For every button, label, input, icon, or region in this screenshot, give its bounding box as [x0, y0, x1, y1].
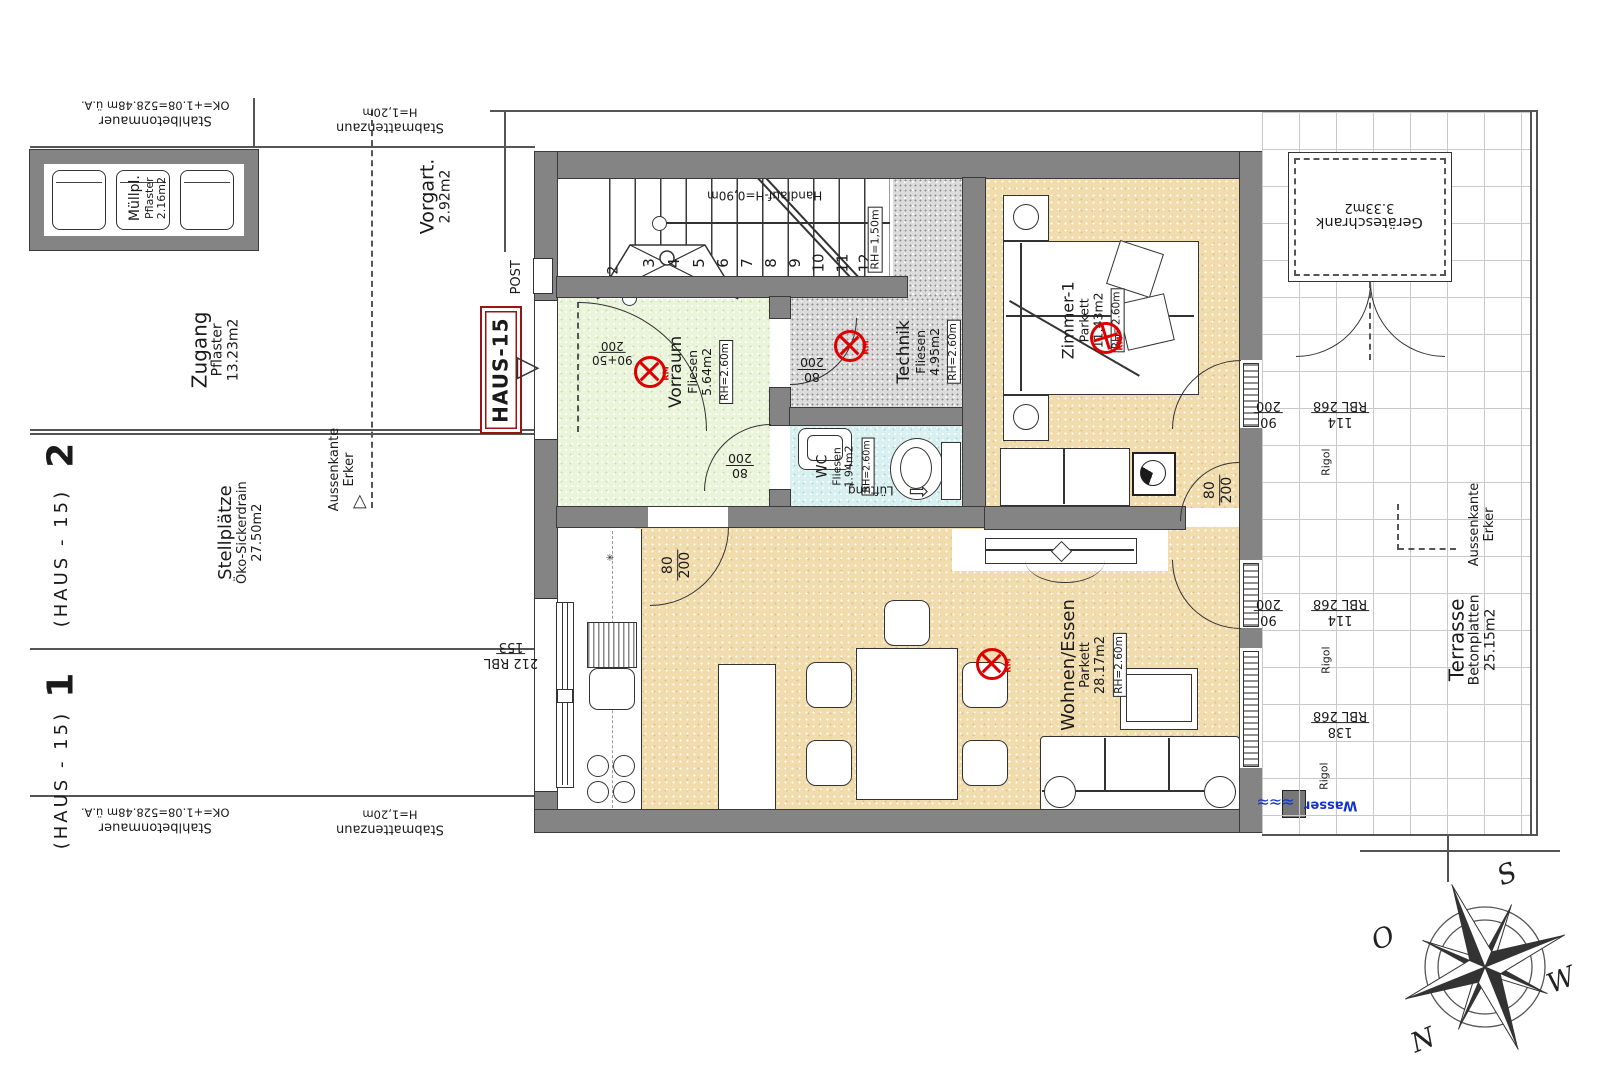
terrace-border [1536, 110, 1538, 836]
kitchen-sink [589, 668, 635, 710]
stair-step-number: 8 [762, 250, 780, 276]
label-zugang: ZugangPflaster13.23m2 [145, 275, 285, 425]
erker-marker-icon: ▷ [346, 486, 372, 516]
wardrobe-divider [1063, 448, 1065, 504]
stair-step-number: 11 [834, 250, 852, 276]
kitchen-star-icon: ✳ [602, 550, 618, 566]
wall-stair-hall [557, 277, 907, 297]
water-wave-icon: ≈≈≈ [1246, 790, 1304, 812]
dim-terrace-door1-inner: 90200 [1242, 390, 1294, 436]
dining-chair [884, 600, 930, 646]
dim-wc-door: 80200 [714, 444, 766, 486]
dining-chair [962, 740, 1008, 786]
wall-vorraum-wc [770, 490, 790, 507]
terrace-window-panel [1243, 651, 1259, 767]
sofa-cushion-line [1104, 738, 1106, 790]
entrance-direction-icon: ▷ [512, 346, 544, 386]
label-room-technik: TechnikFliesen4.95m2RH=2.60m [868, 292, 988, 412]
label-stahlbetonmauer-top: StahlbetonmauerOK=+1.08=528.48m ü.A. [55, 91, 255, 135]
label-rigol: Rigol [1316, 634, 1338, 686]
terrace-bottom-line [1262, 834, 1538, 836]
dim-terrace-window-outer: 138RBL 268 [1300, 700, 1380, 746]
kitchen-window-glazing [556, 602, 574, 788]
handrail-line [662, 222, 890, 224]
dim-kitchen-door: 80200 [650, 538, 704, 592]
geraeteschrank-door-centerline [1369, 282, 1371, 360]
floorplan-canvas: 1 2 3 4 5 6 7 8 9 10 11 12 ✳ [0, 0, 1620, 1080]
erker-dashed-line-right [1398, 548, 1456, 550]
label-post: POST [503, 251, 531, 303]
dining-chair [806, 662, 852, 708]
smoke-detector-tag: RM [660, 360, 672, 386]
label-stabmattenzaun-bottom: StabmattenzaunH=1,20m [290, 800, 490, 844]
boundary-line [30, 433, 535, 435]
smoke-detector-tag: RM [860, 334, 872, 360]
vorgarten-line [504, 112, 506, 252]
parking-divider-line [30, 648, 535, 650]
boundary-line [30, 429, 535, 431]
label-stellplaetze: StellplätzeÖko-Sickerdrain27.50m2 [175, 445, 305, 620]
label-aussenkante-right: AussenkanteErker [1456, 470, 1510, 580]
label-geraeteschrank: Geräteschrank3.33m2 [1296, 190, 1442, 238]
kitchen-drainboard [587, 622, 637, 668]
dining-table [856, 648, 958, 800]
site-corner-line [1447, 834, 1449, 882]
bed-headboard-line [1020, 243, 1022, 391]
label-stair-rh: RH=1,50m [858, 196, 888, 282]
stair-step-number: 5 [690, 250, 708, 276]
stair-step-number: 10 [810, 250, 828, 276]
dim-kitchen-window: 212 RBL153 [474, 628, 548, 680]
dim-terrace-door2-outer: 114RBL 268 [1300, 588, 1380, 634]
label-lueftung: Lüftung [834, 480, 908, 500]
lamp-icon [1013, 404, 1039, 430]
wall-top [535, 152, 1262, 178]
label-stall2-number: 2 [36, 425, 88, 485]
stair-step-number: 4 [665, 250, 683, 276]
wall-vorraum-wohnen [557, 507, 985, 527]
erker-dashed-line-left [371, 110, 373, 508]
label-stall2-house: (HAUS - 15) [34, 478, 90, 638]
kitchen-door-opening [648, 507, 728, 527]
label-room-zimmer1: Zimmer-1Parkett11.43m2RH=2.60m [1032, 260, 1152, 380]
toilet-tank [941, 442, 961, 500]
wall-bottom [535, 810, 1262, 832]
sofa-armrest [1204, 776, 1236, 808]
wall-hall-wohnen [985, 507, 1185, 529]
label-rigol: Rigol [1316, 436, 1338, 488]
sofa-cushion-line [1168, 738, 1170, 790]
dim-terrace-door1-outer: 114RBL 268 [1300, 390, 1380, 436]
dim-entrance-door: 90+50200 [582, 330, 642, 374]
erker-dashed-line-right [1397, 504, 1399, 550]
stair-step-number: 3 [640, 250, 658, 276]
vent-arrow-icon: ⇨ [902, 478, 936, 504]
dim-technik-door: 80200 [784, 348, 840, 390]
label-muellplatz: Müllpl.Pflaster2.16m2 [98, 148, 198, 248]
label-room-wohnen: Wohnen/EssenParkett28.17m2RH=2.60m [1030, 600, 1155, 730]
dim-hall-door: 80200 [1194, 464, 1244, 516]
kitchen-island [718, 664, 776, 812]
stair-step-number: 9 [786, 250, 804, 276]
wardrobe [1000, 448, 1130, 506]
wall-vorraum-technik [770, 297, 790, 318]
label-stabmattenzaun-top: StabmattenzaunH=1,20m [290, 98, 490, 142]
lamp-icon [1013, 204, 1039, 230]
label-handlauf: Handlauf-H=0,90m [680, 186, 850, 204]
wall-vorraum-technik [770, 388, 790, 425]
boundary-line [30, 795, 535, 797]
stair-step-number: 6 [714, 250, 732, 276]
smoke-detector-tag: RM [1002, 652, 1014, 678]
stair-step-number: 7 [738, 250, 756, 276]
shaft-box [1132, 452, 1176, 496]
label-stahlbetonmauer-bottom: StahlbetonmauerOK=+1.08=528.48m ü.A. [55, 798, 255, 842]
handrail-post [652, 216, 667, 231]
label-terrasse: TerrasseBetonplatten25.15m2 [1407, 560, 1537, 720]
sofa-armrest [1044, 776, 1076, 808]
dim-terrace-door2-inner: 90200 [1242, 588, 1294, 634]
cooktop [585, 753, 637, 807]
post-box [533, 258, 553, 294]
terrace-border [1530, 110, 1532, 836]
dining-chair [806, 740, 852, 786]
label-wasser: Wasser [1298, 794, 1364, 814]
smoke-detector-tag: RM [1114, 330, 1126, 356]
label-vorgarten: Vorgart.2.92m2 [396, 146, 476, 246]
